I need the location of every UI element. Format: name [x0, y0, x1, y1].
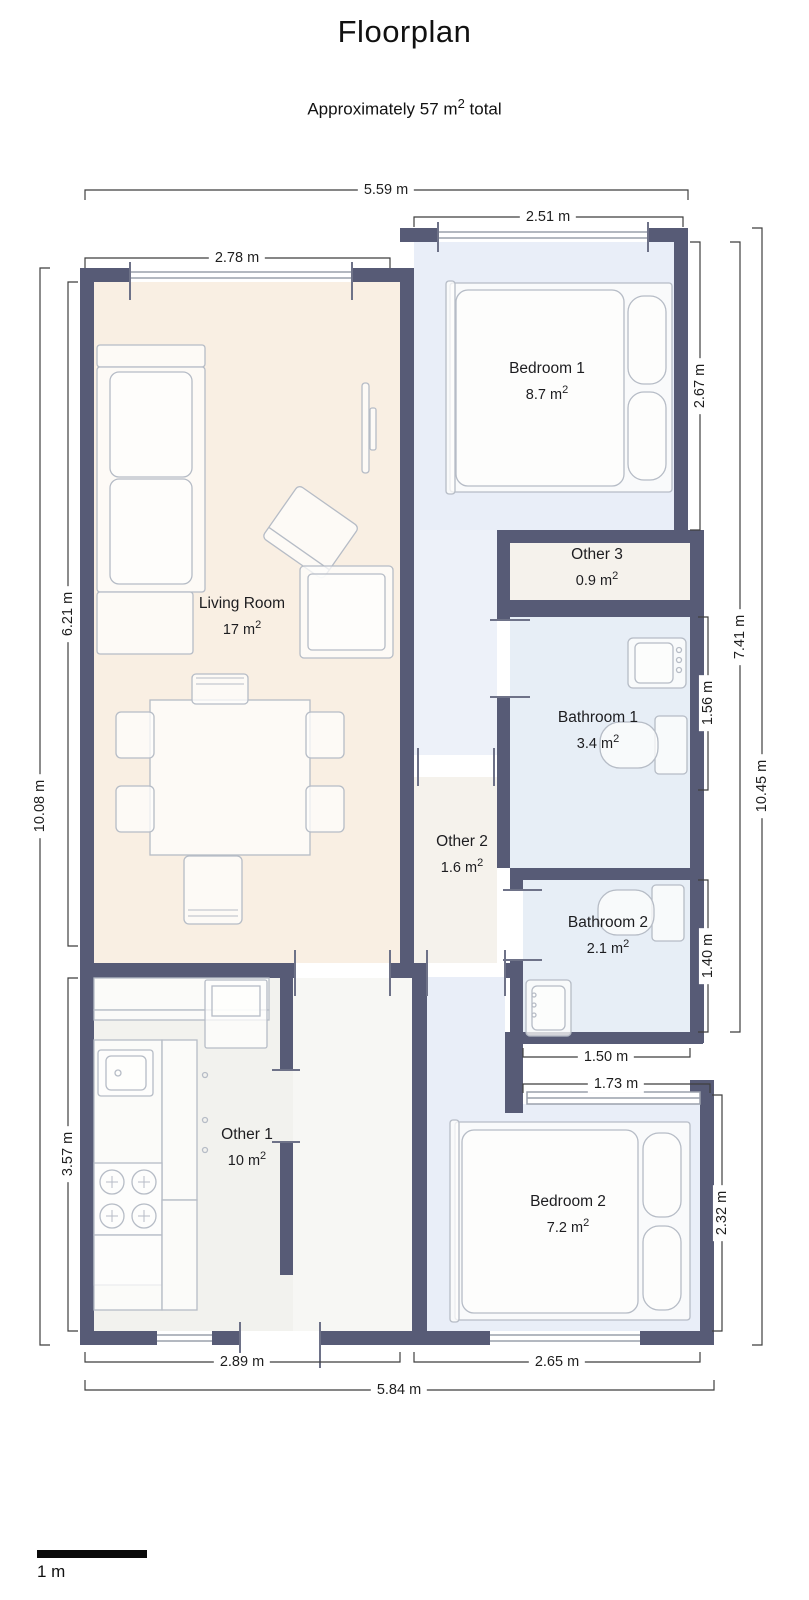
dim-label-livingroom-width: 2.78 m [209, 249, 265, 267]
wall [497, 530, 510, 620]
bedroom2-window [490, 1331, 640, 1345]
scale-bar-label: 1 m [37, 1562, 65, 1582]
side-chair-icon [300, 566, 393, 658]
hallway-floor [427, 977, 505, 1104]
wall-bathroom-divider [510, 868, 690, 880]
stove-icon [94, 1163, 162, 1235]
room-label-other2: Other 2 1.6 m2 [436, 830, 488, 880]
wall [510, 868, 523, 890]
room-area: 0.9 m [576, 573, 612, 589]
room-name: Other 3 [571, 543, 623, 568]
room-area: 1.6 m [441, 860, 477, 876]
sink-icon-bathroom1 [628, 638, 686, 688]
dining-table-icon [150, 700, 310, 855]
dim-label-livingroom-height: 6.21 m [59, 586, 77, 642]
sink-icon-bathroom2 [526, 980, 571, 1036]
wall [700, 1080, 714, 1345]
room-area: 3.4 m [577, 736, 613, 752]
room-area: 7.2 m [547, 1220, 583, 1236]
sofa-icon [97, 345, 205, 654]
dim-label-right-overall: 10.45 m [753, 754, 771, 818]
floorplan-drawing [0, 0, 809, 1600]
wall-other3-bottom [497, 600, 690, 617]
wall-bathroom1-left [497, 697, 510, 868]
corridor-door-threshold [414, 755, 497, 777]
wall-kitchen-divider [280, 1142, 293, 1275]
room-label-living-room: Living Room 17 m2 [199, 592, 285, 642]
wall [80, 1331, 157, 1345]
room-name: Bathroom 1 [558, 706, 638, 731]
room-area: 2.1 m [587, 941, 623, 957]
dim-label-bathroom2-width: 1.50 m [578, 1048, 634, 1066]
wall [674, 228, 688, 543]
scale-bar [37, 1550, 147, 1558]
dim-label-bedroom1-width: 2.51 m [520, 208, 576, 226]
room-area: 17 m [223, 622, 255, 638]
wall [505, 1043, 523, 1113]
living-room-window [130, 268, 352, 282]
room-label-other1: Other 1 10 m2 [221, 1123, 273, 1173]
wall [320, 1331, 490, 1345]
dim-label-bedroom1-height: 2.67 m [691, 358, 709, 414]
dim-label-bathroom2-height: 1.40 m [699, 928, 717, 984]
wall [640, 1331, 714, 1345]
dim-label-bedroom2-opening: 1.73 m [588, 1075, 644, 1093]
wall [80, 268, 94, 1345]
dim-label-top-overall: 5.59 m [358, 181, 414, 199]
room-label-other3: Other 3 0.9 m2 [571, 543, 623, 593]
room-name: Bedroom 2 [530, 1190, 606, 1215]
dim-label-right-mid: 7.41 m [731, 609, 749, 665]
wall-livingroom-corridor [400, 268, 414, 963]
room-label-bathroom1: Bathroom 1 3.4 m2 [558, 706, 638, 756]
room-area: 10 m [228, 1153, 260, 1169]
wall [212, 1331, 240, 1345]
room-name: Other 2 [436, 830, 488, 855]
dim-label-bedroom2-height: 2.32 m [713, 1185, 731, 1241]
bedroom1-corridor-floor [414, 530, 497, 755]
room-name: Bedroom 1 [509, 357, 585, 382]
room-name: Other 1 [221, 1123, 273, 1148]
dim-label-bottom-overall: 5.84 m [371, 1381, 427, 1399]
wall [400, 228, 438, 242]
dim-label-other1-width: 2.89 m [214, 1353, 270, 1371]
other1-window [157, 1331, 212, 1345]
fridge-icon [205, 980, 267, 1048]
wall-other3-top [497, 530, 704, 543]
room-label-bathroom2: Bathroom 2 2.1 m2 [568, 911, 648, 961]
room-label-bedroom2: Bedroom 2 7.2 m2 [530, 1190, 606, 1240]
room-name: Bathroom 2 [568, 911, 648, 936]
dim-label-other1-height: 3.57 m [59, 1126, 77, 1182]
wall-livingroom-bottom [80, 963, 295, 978]
wall [505, 963, 523, 978]
floorplan-page: Floorplan Approximately 57 m2 total [0, 0, 809, 1600]
bedroom2-top-window [527, 1092, 700, 1104]
dim-label-left-overall: 10.08 m [31, 774, 49, 838]
room-label-bedroom1: Bedroom 1 8.7 m2 [509, 357, 585, 407]
bedroom1-window [438, 228, 648, 242]
room-name: Living Room [199, 592, 285, 617]
kitchen-sink-icon [98, 1050, 153, 1096]
dim-label-bedroom2-width: 2.65 m [529, 1353, 585, 1371]
wall-entry-divider [412, 963, 427, 1331]
room-area: 8.7 m [526, 387, 562, 403]
dim-label-bathroom1-height: 1.56 m [699, 675, 717, 731]
entry-floor [293, 978, 412, 1331]
wall-kitchen-divider [280, 963, 293, 1070]
